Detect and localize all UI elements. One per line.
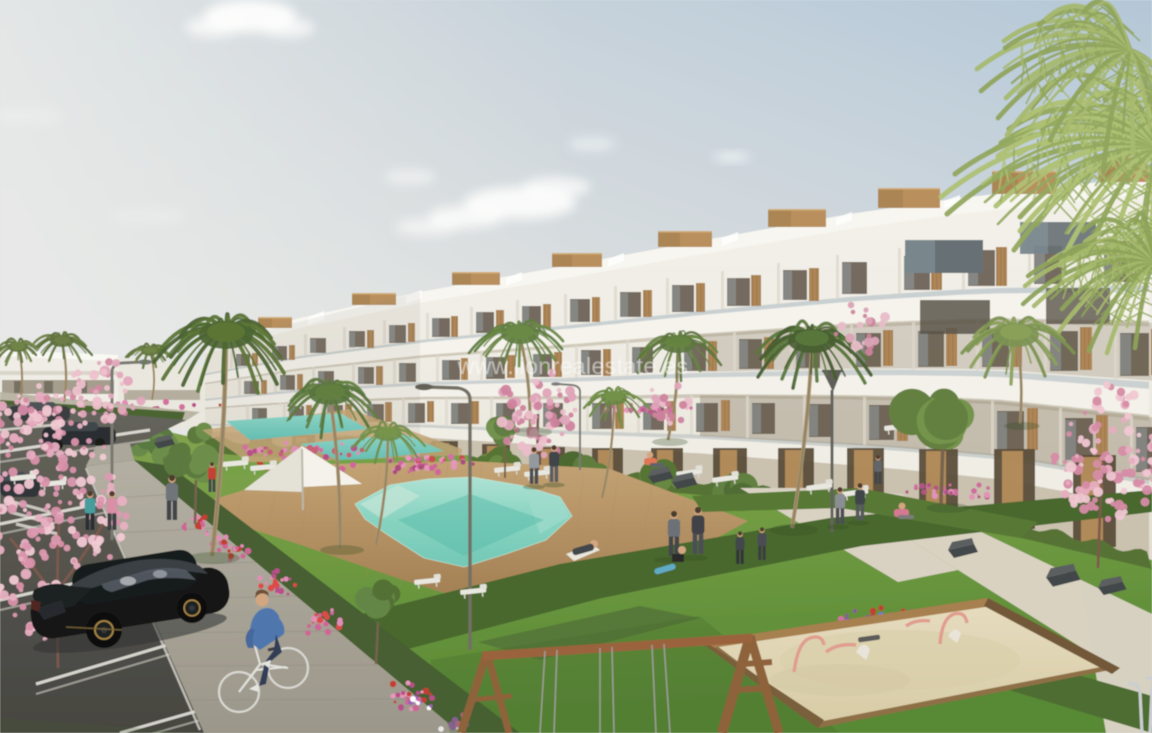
svg-text:www.lionrealestate.es: www.lionrealestate.es bbox=[457, 353, 689, 379]
